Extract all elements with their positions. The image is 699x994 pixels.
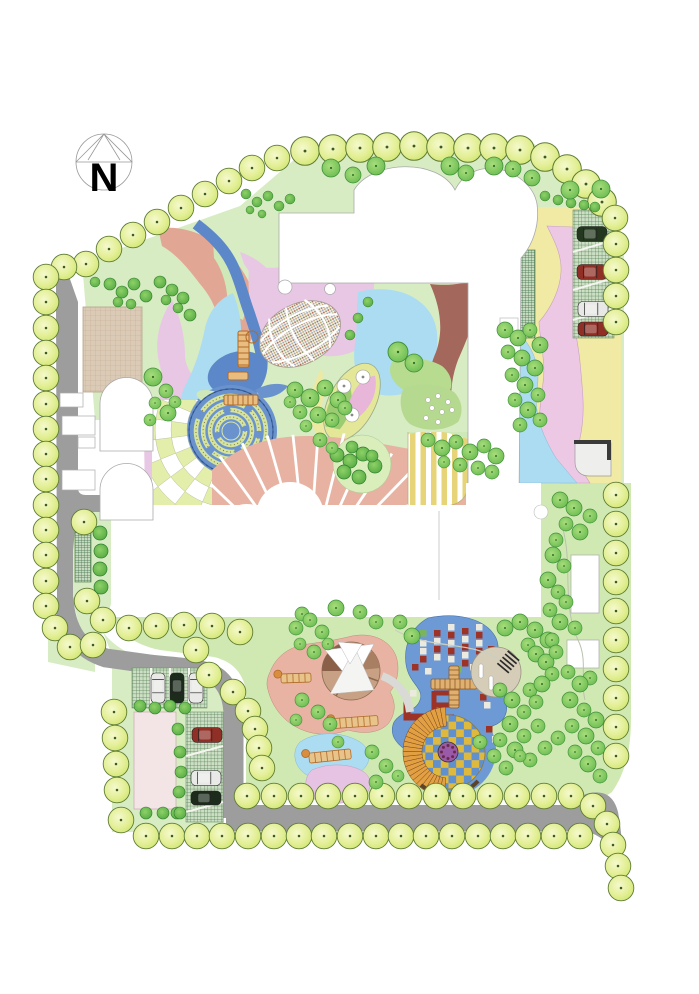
svg-text:N: N <box>90 156 119 200</box>
